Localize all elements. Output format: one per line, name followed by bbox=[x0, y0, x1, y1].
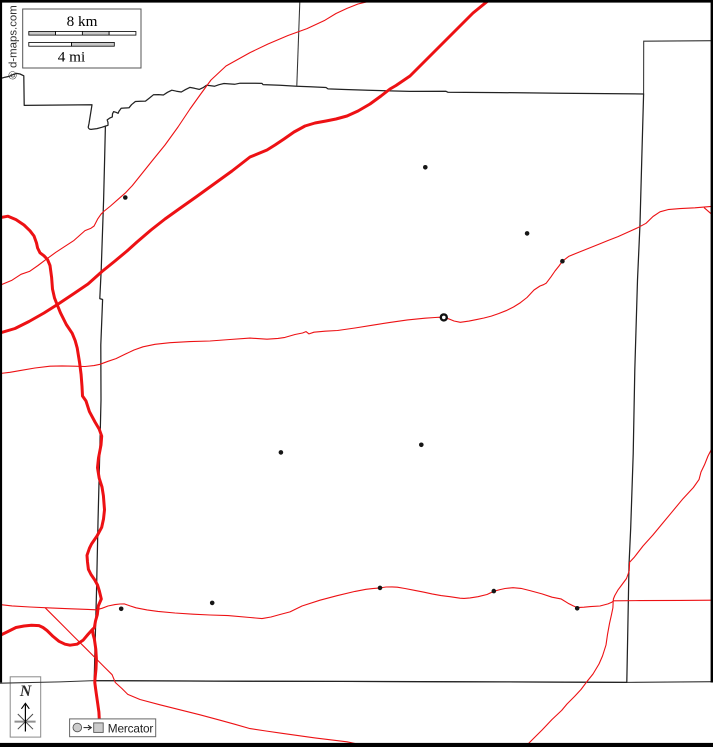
svg-text:© d-maps.com: © d-maps.com bbox=[7, 5, 19, 79]
svg-text:N: N bbox=[19, 683, 32, 700]
svg-text:Mercator: Mercator bbox=[108, 721, 154, 735]
svg-text:4 mi: 4 mi bbox=[58, 49, 85, 66]
svg-text:8 km: 8 km bbox=[67, 13, 98, 30]
